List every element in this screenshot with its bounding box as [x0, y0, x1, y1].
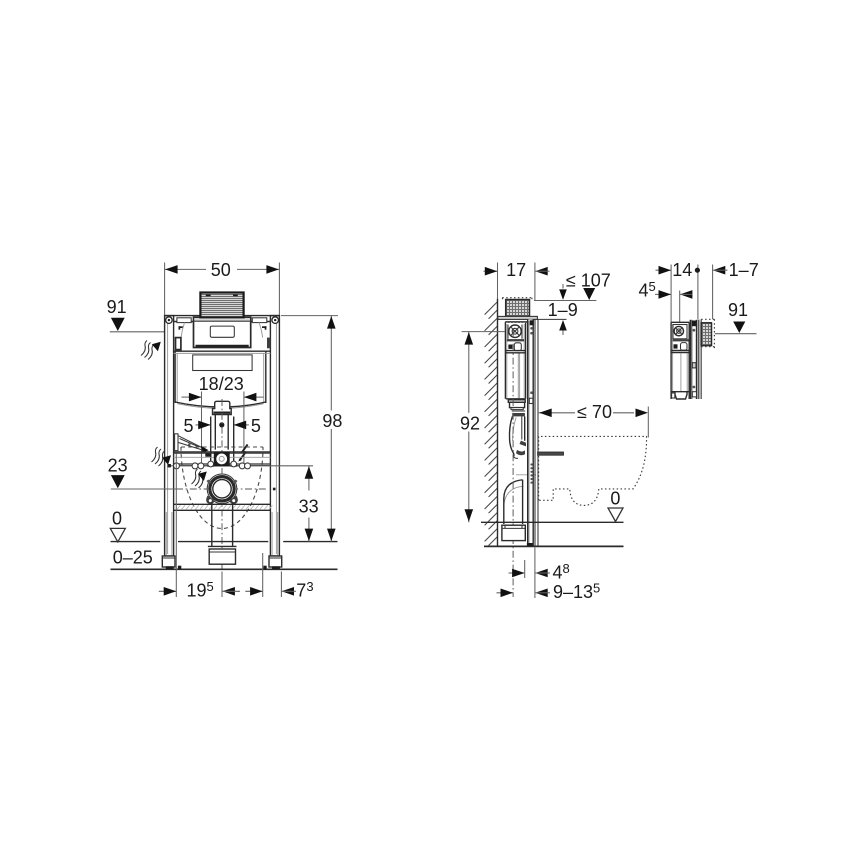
svg-text:91: 91 [107, 297, 127, 317]
svg-text:92: 92 [460, 413, 480, 433]
svg-text:≤ 107: ≤ 107 [566, 270, 611, 290]
svg-text:≤ 70: ≤ 70 [577, 402, 612, 422]
svg-text:0: 0 [610, 488, 620, 508]
svg-text:1–7: 1–7 [729, 260, 759, 280]
svg-text:18/23: 18/23 [199, 374, 244, 394]
svg-text:91: 91 [728, 300, 748, 320]
svg-text:33: 33 [299, 496, 319, 516]
svg-text:23: 23 [108, 455, 128, 475]
svg-text:17: 17 [506, 260, 526, 280]
svg-text:50: 50 [211, 260, 231, 280]
svg-text:98: 98 [322, 411, 342, 431]
svg-text:0–25: 0–25 [113, 547, 153, 567]
svg-text:5: 5 [251, 416, 261, 436]
svg-text:0: 0 [112, 508, 122, 528]
svg-text:14: 14 [672, 260, 692, 280]
svg-text:5: 5 [183, 416, 193, 436]
svg-text:1–9: 1–9 [548, 300, 578, 320]
